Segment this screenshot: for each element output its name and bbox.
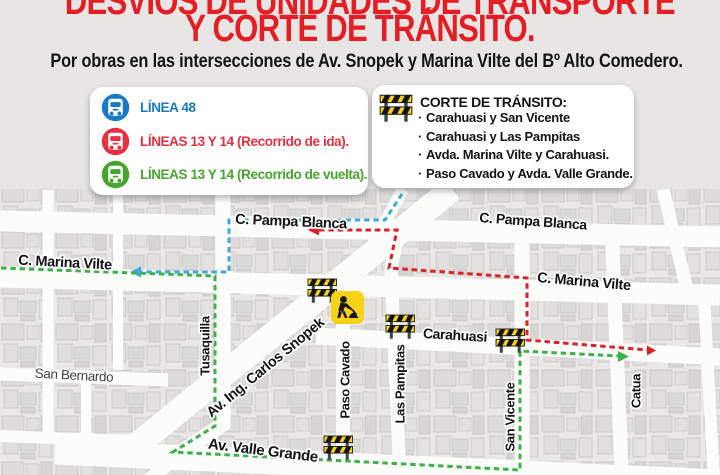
label-paso-cavado: Paso Cavado xyxy=(338,341,353,419)
bus-lines-legend: LÍNEA 48 LÍNEAS 13 Y 14 (Recorrido de id… xyxy=(90,87,368,195)
closure-item: ·Carahuasi y San Vicente xyxy=(418,109,628,128)
map: C. Pampa Blanca C. Pampa Blanca C. Marin… xyxy=(0,189,720,475)
legend-label: LÍNEA 48 xyxy=(140,100,196,115)
closure-item: ·Paso Cavado y Avda. Valle Grande. xyxy=(418,165,628,184)
road-barrier-icon xyxy=(378,93,414,125)
roadworks-icon xyxy=(331,291,364,324)
label-san-vicente: San Vicente xyxy=(503,382,518,451)
legend-item-lineas-13-14-vuelta: LÍNEAS 13 Y 14 (Recorrido de vuelta). xyxy=(90,160,368,189)
label-tusaquilla: Tusaquilla xyxy=(198,315,213,375)
legend-label: LÍNEAS 13 Y 14 (Recorrido de vuelta). xyxy=(140,167,367,182)
bus-icon xyxy=(101,93,130,122)
closures-list: ·Carahuasi y San Vicente ·Carahuasi y La… xyxy=(378,109,628,183)
poster: DESVÍOS DE UNIDADES DE TRANSPORTE Y CORT… xyxy=(0,0,720,475)
main-title-line2: Y CORTE DE TRÁNSITO. xyxy=(65,8,655,51)
closure-item: ·Carahuasi y Las Pampitas xyxy=(418,128,628,147)
label-las-pampitas: Las Pampitas xyxy=(393,344,408,423)
legend-label: LÍNEAS 13 Y 14 (Recorrido de ida). xyxy=(140,134,349,149)
legend-item-lineas-13-14-ida: LÍNEAS 13 Y 14 (Recorrido de ida). xyxy=(90,127,368,156)
bus-icon xyxy=(101,160,130,189)
subtitle: Por obras en las intersecciones de Av. S… xyxy=(50,51,669,73)
closure-item: ·Avda. Marina Vilte y Carahuasi. xyxy=(418,146,628,165)
legend-item-linea-48: LÍNEA 48 xyxy=(90,93,368,122)
bus-icon xyxy=(101,127,130,156)
closures-panel: CORTE DE TRÁNSITO: ·Carahuasi y San Vice… xyxy=(372,85,634,188)
street-left-lower xyxy=(0,436,132,441)
closures-title: CORTE DE TRÁNSITO: xyxy=(420,93,567,110)
label-catua: Catua xyxy=(629,373,644,408)
